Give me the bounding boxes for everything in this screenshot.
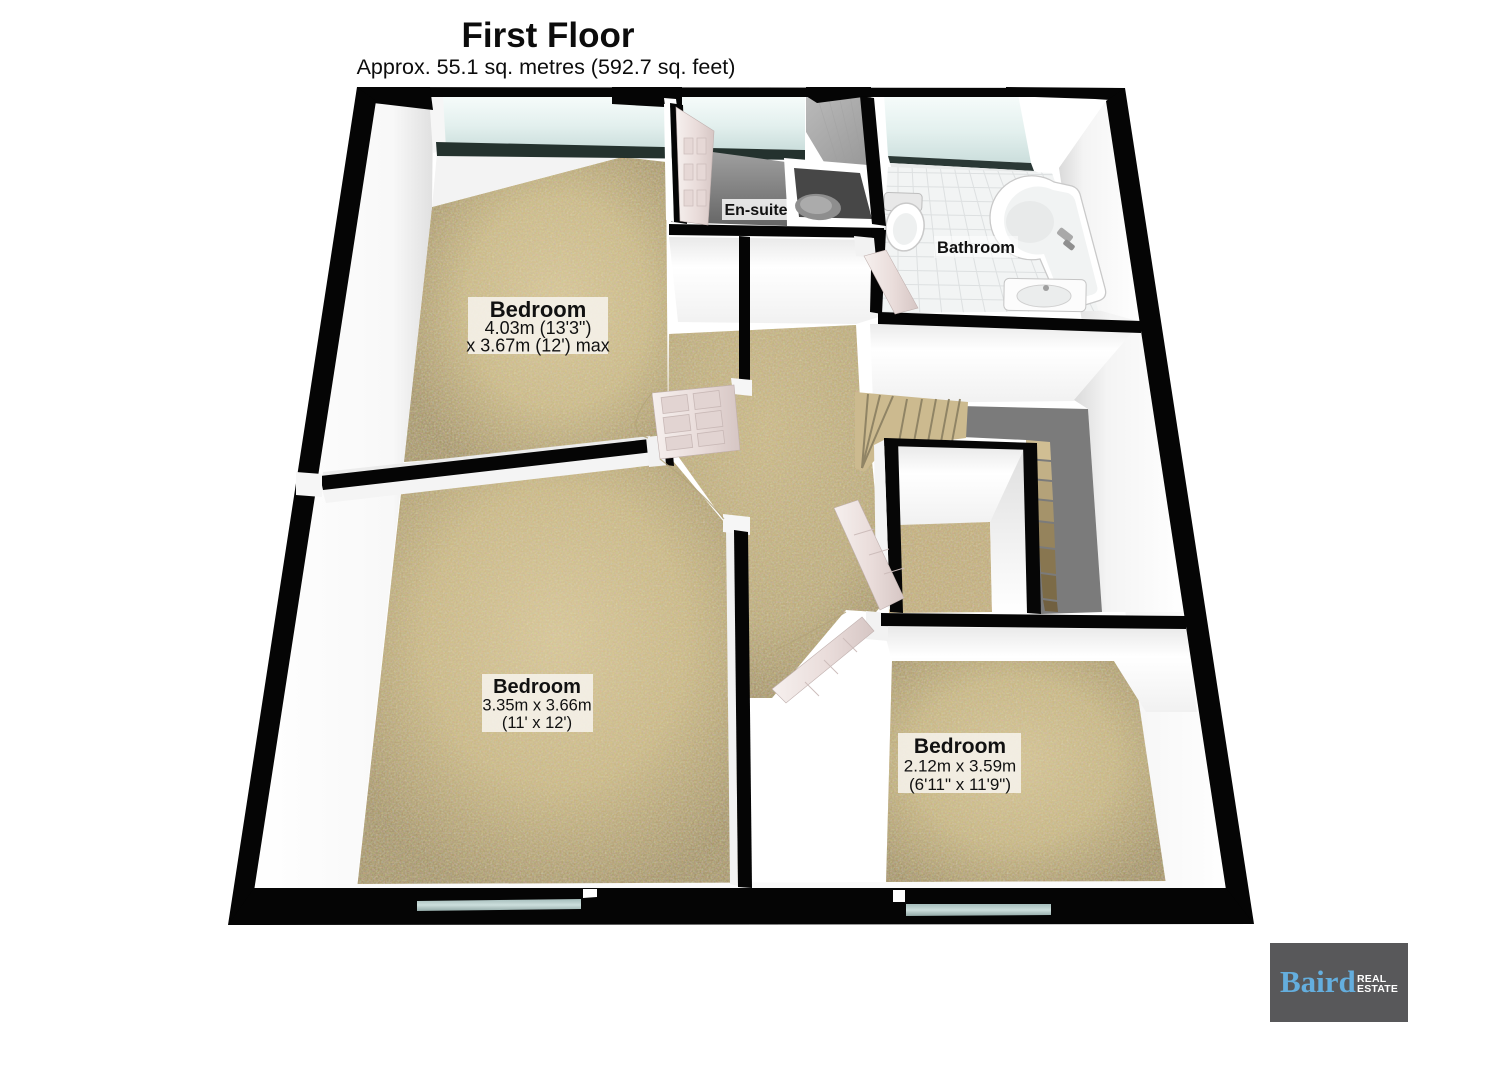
svg-text:(6'11" x 11'9"): (6'11" x 11'9")	[909, 775, 1011, 794]
svg-text:Bedroom: Bedroom	[914, 735, 1006, 758]
svg-text:(11' x 12'): (11' x 12')	[502, 714, 572, 732]
svg-text:Bathroom: Bathroom	[937, 239, 1015, 257]
svg-text:En-suite: En-suite	[724, 202, 787, 219]
svg-text:2.12m x 3.59m: 2.12m x 3.59m	[904, 757, 1016, 776]
svg-text:Bedroom: Bedroom	[493, 676, 581, 698]
svg-text:3.35m x 3.66m: 3.35m x 3.66m	[482, 697, 591, 715]
svg-text:x 3.67m (12') max: x 3.67m (12') max	[466, 335, 609, 355]
